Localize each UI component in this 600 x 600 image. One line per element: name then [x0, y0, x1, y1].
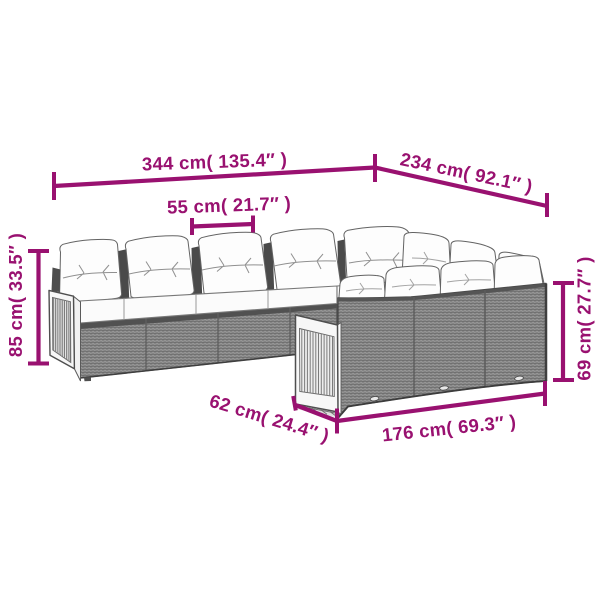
- svg-text:69 cm( 27.7″ ): 69 cm( 27.7″ ): [574, 256, 595, 380]
- svg-text:55 cm( 21.7″ ): 55 cm( 21.7″ ): [167, 192, 292, 217]
- svg-text:85 cm( 33.5″ ): 85 cm( 33.5″ ): [5, 233, 26, 357]
